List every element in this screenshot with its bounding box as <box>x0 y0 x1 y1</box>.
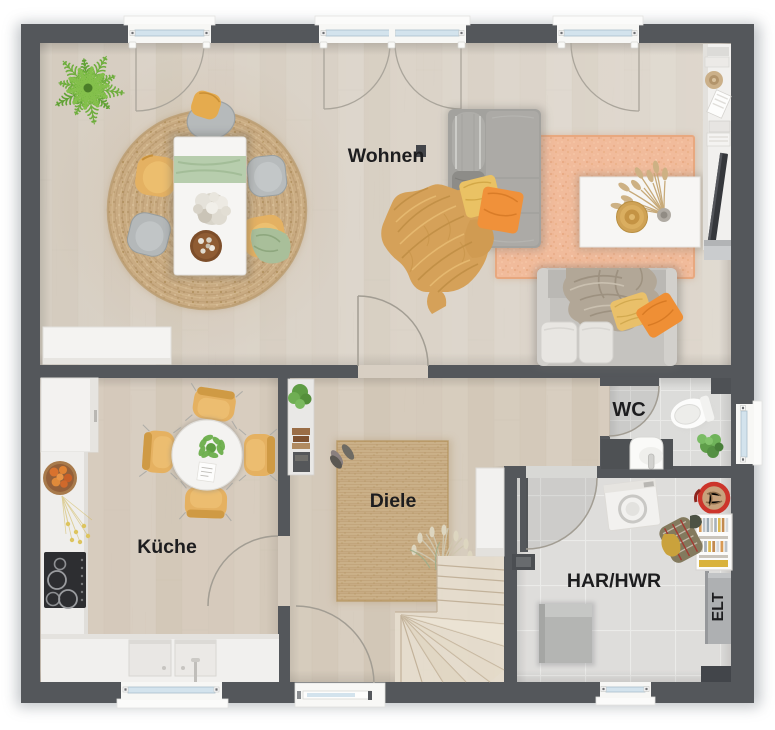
svg-text:Wohnen: Wohnen <box>348 145 425 167</box>
svg-text:Küche: Küche <box>137 536 197 558</box>
svg-text:ELT: ELT <box>710 592 727 621</box>
svg-text:WC: WC <box>612 399 645 421</box>
svg-text:Diele: Diele <box>370 490 417 512</box>
svg-text:HAR/HWR: HAR/HWR <box>567 570 661 592</box>
